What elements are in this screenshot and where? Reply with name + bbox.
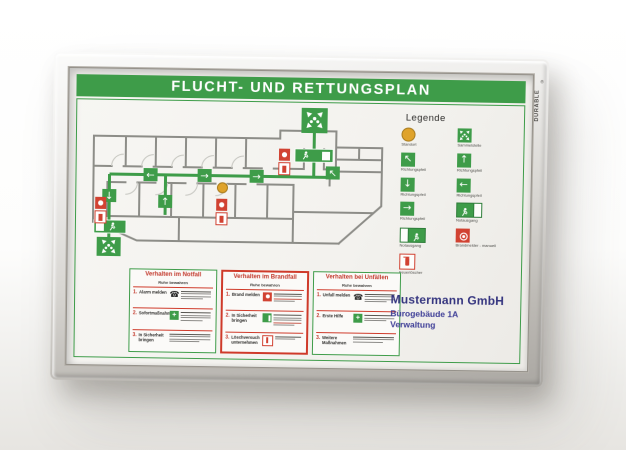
legend-item: ↓ Richtungspfeil: [400, 177, 450, 198]
arrow-down-icon: ↓: [401, 177, 415, 191]
arrow-up-left-icon: ↖: [328, 168, 337, 179]
standort-icon: [401, 127, 415, 141]
company-block: Mustermann GmbH Bürogebäude 1A Verwaltun…: [390, 292, 512, 331]
feuerloescher-icon: [279, 163, 290, 175]
feuerloescher-icon: [399, 254, 415, 270]
assembly-point-sign-bottom: [97, 237, 121, 256]
arrow-right-icon: →: [400, 202, 414, 216]
company-name: Mustermann GmbH: [391, 292, 513, 308]
legend-item: ↑ Richtungspfeil: [457, 153, 515, 174]
step: 2. Sofortmaßnahmen +: [133, 307, 213, 330]
arrow-right-icon: →: [252, 172, 261, 183]
panel-verhalten-bei-unfaellen: Verhalten bei Unfällen Ruhe bewahren 1. …: [312, 271, 401, 356]
brandmelder-icon: [456, 229, 470, 243]
product-photo-scene: ® DURABLE FLUCHT- UND RETTUNGSPLAN: [0, 0, 626, 450]
arrow-right-icon: →: [200, 171, 209, 182]
fine-print-lines: [274, 292, 304, 304]
first-aid-icon: +: [170, 311, 179, 320]
brandmelder-icon: [216, 199, 227, 211]
escape-plan-poster: FLUCHT- UND RETTUNGSPLAN: [65, 67, 534, 372]
brandmelder-icon: [95, 197, 106, 209]
first-aid-icon: +: [353, 314, 362, 323]
emergency-exit-icon: [262, 313, 271, 322]
arrow-up-icon: ↑: [457, 153, 471, 167]
assembly-point-sign: [301, 108, 327, 133]
fine-print-lines: [181, 311, 213, 323]
fire-equipment-icons: [95, 146, 290, 226]
emergency-exit-sign-top: [295, 149, 333, 163]
legend-item: Notausgang: [400, 228, 450, 250]
brand-logo-icon: ®: [540, 79, 543, 84]
arrow-left-icon: ←: [457, 178, 471, 192]
legend: Legende Standort Sammelstelle ↖: [399, 112, 518, 277]
step: 1. Alarm melden ☎: [133, 286, 213, 309]
standort-icon: [217, 183, 227, 193]
arrow-left-icon: ←: [146, 170, 155, 181]
fine-print-lines: [275, 335, 303, 342]
notausgang-right-icon: [456, 203, 482, 218]
step: 3. In Sicherheit bringen: [132, 329, 212, 352]
legend-item: ↖ Richtungspfeil: [401, 152, 451, 173]
arrow-up-icon: ↑: [161, 197, 170, 208]
notausgang-left-icon: [400, 228, 426, 243]
phone-icon: ☎: [354, 292, 363, 301]
panel-verhalten-im-brandfall: Verhalten im Brandfall Ruhe bewahren 1. …: [220, 270, 309, 355]
fine-print-lines: [353, 335, 396, 344]
step: 1. Brand melden: [226, 288, 304, 311]
poster-content: ← → → ↓ ↑ ↖: [73, 98, 525, 364]
company-department: Verwaltung: [390, 319, 512, 331]
floor-plan: ← → → ↓ ↑ ↖: [81, 103, 395, 262]
step: 1. Unfall melden ☎: [317, 289, 397, 312]
snap-frame: ® DURABLE FLUCHT- UND RETTUNGSPLAN: [50, 52, 549, 388]
sammelstelle-icon: [457, 128, 471, 142]
legend-item: Sammelstelle: [457, 128, 515, 149]
arrow-down-icon: ↓: [105, 191, 114, 202]
brand-label: DURABLE: [534, 85, 547, 125]
step: 2. Erste Hilfe +: [316, 310, 396, 333]
phone-icon: ☎: [170, 289, 179, 298]
fine-print-lines: [273, 314, 303, 328]
feuerloescher-icon: [216, 213, 227, 225]
legend-item: Standort: [401, 127, 451, 148]
company-building: Bürogebäude 1A: [390, 308, 512, 320]
step: 3. Löschversuch unternehmen: [225, 331, 303, 354]
fine-print-lines: [181, 290, 213, 302]
brandmelder-icon: [263, 292, 272, 301]
step: 3. Weitere Maßnahmen: [316, 332, 396, 355]
brandmelder-icon: [279, 149, 290, 161]
legend-item: Notausgang: [456, 203, 514, 225]
step: 2. In Sicherheit bringen: [225, 310, 303, 333]
arrow-up-left-icon: ↖: [401, 152, 415, 166]
legend-item: Brandmelder - manuell: [455, 229, 513, 251]
legend-item: Feuerlöscher: [399, 254, 449, 277]
feuerloescher-icon: [262, 335, 273, 346]
legend-item: ← Richtungspfeil: [456, 178, 514, 199]
instruction-panels: Verhalten im Notfall Ruhe bewahren 1. Al…: [128, 268, 401, 356]
legend-heading: Legende: [406, 112, 518, 125]
fine-print-lines: [169, 332, 212, 344]
walls: [93, 128, 383, 245]
panel-verhalten-im-notfall: Verhalten im Notfall Ruhe bewahren 1. Al…: [128, 268, 217, 353]
feuerloescher-icon: [95, 211, 106, 223]
legend-item: → Richtungspfeil: [400, 202, 450, 224]
